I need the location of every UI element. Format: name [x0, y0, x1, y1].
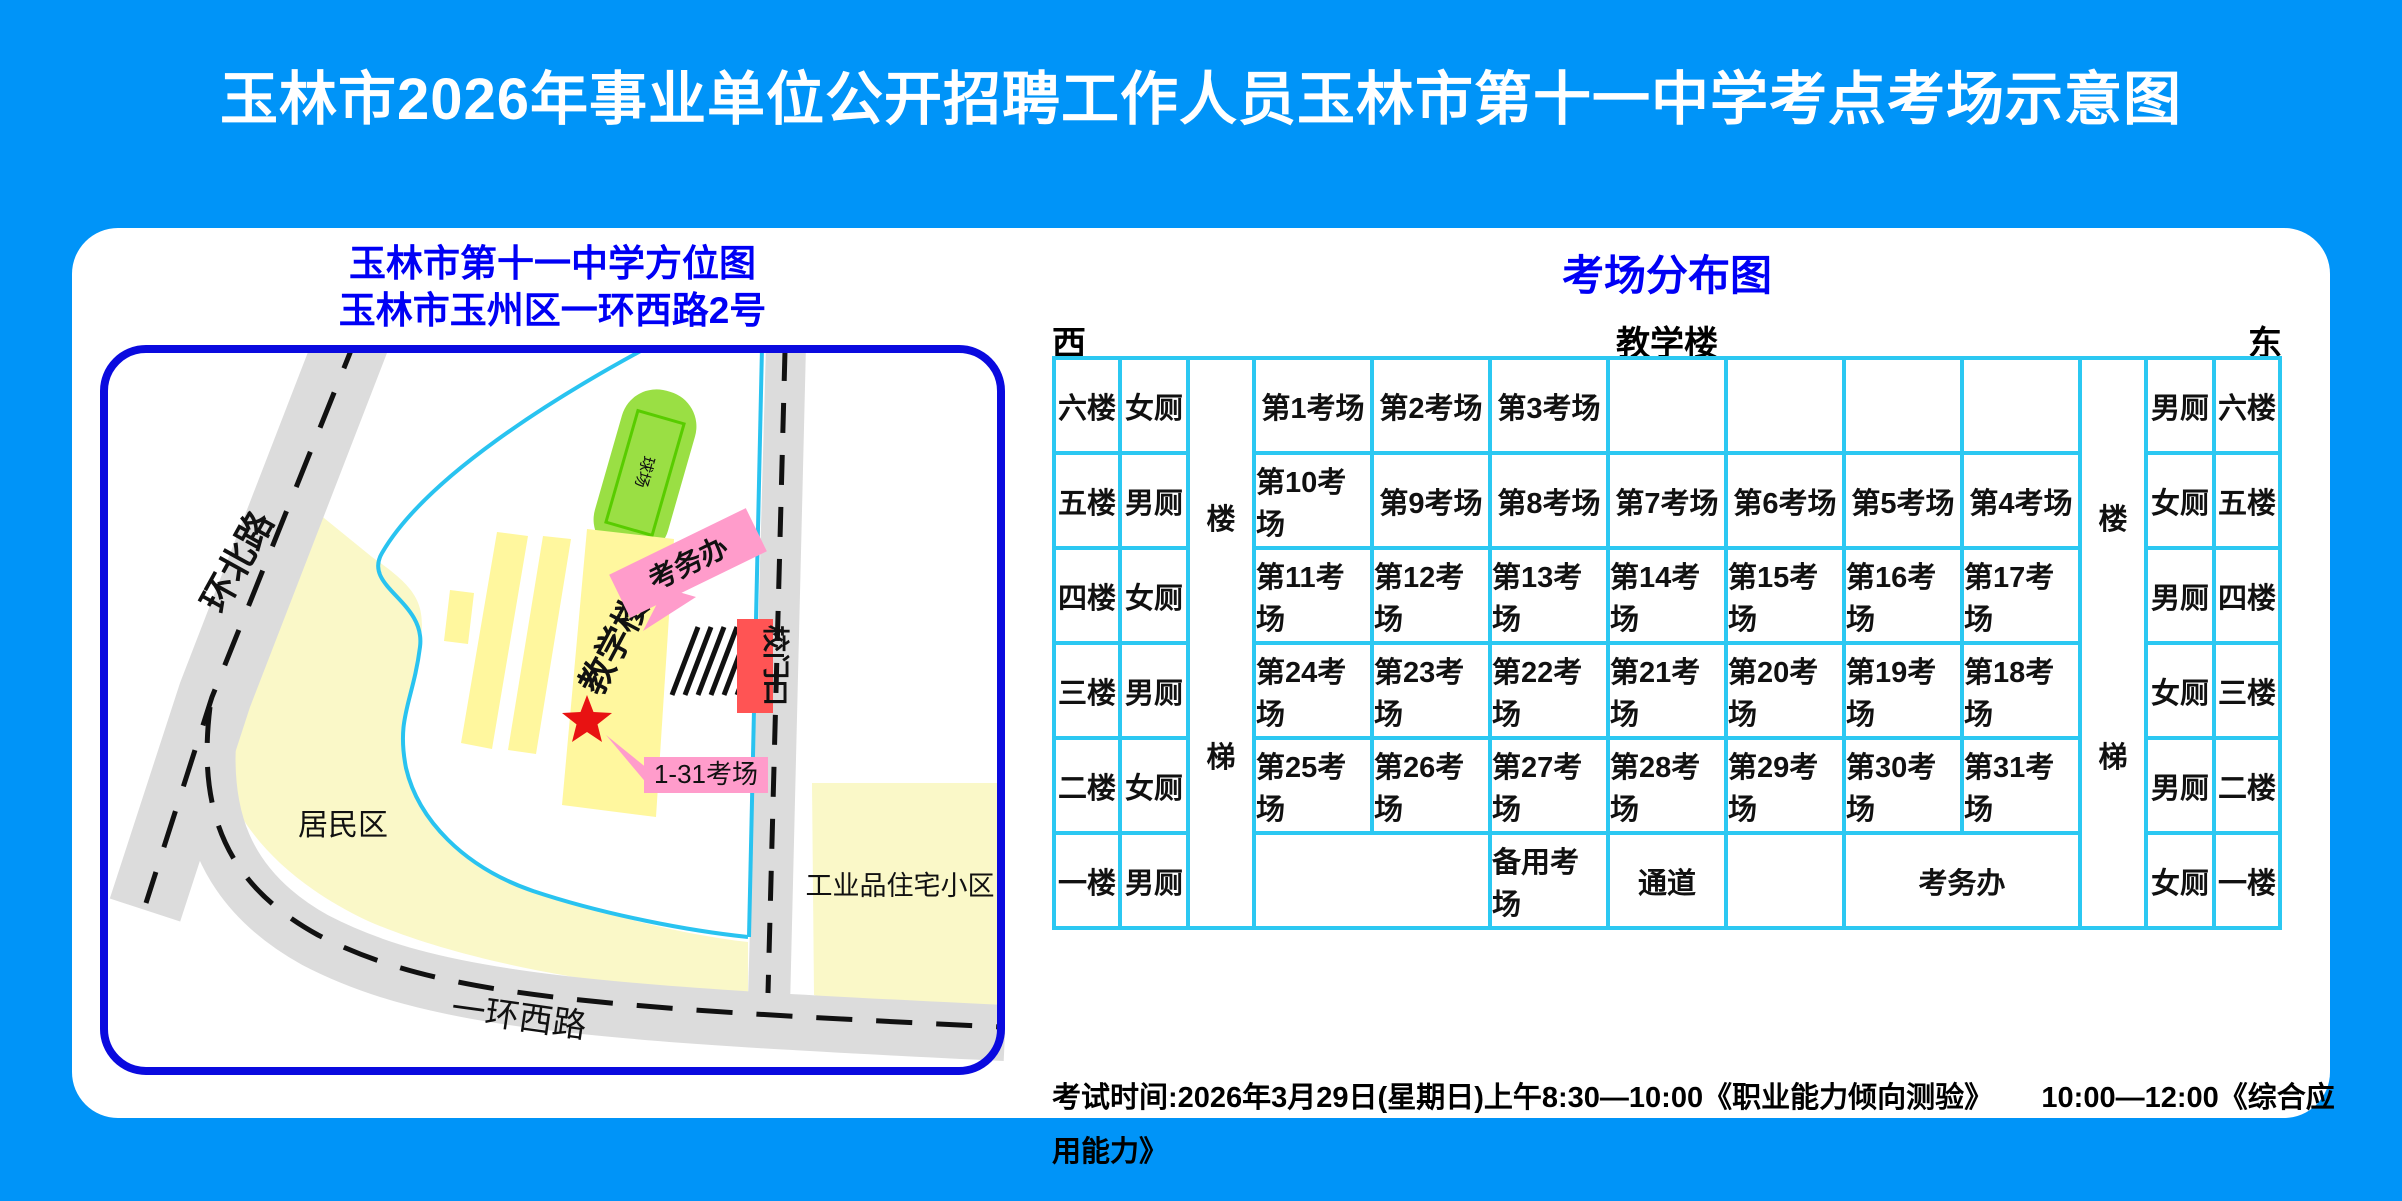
toilet-cell-left: 男厕 [1122, 645, 1186, 736]
exam-grid: 楼 梯 楼 梯 六楼女厕第1考场第2考场第3考场男厕六楼五楼男厕第10考场第9考… [1052, 356, 2282, 930]
room-cell: 第8考场 [1492, 455, 1606, 546]
room-cell: 第17考场 [1964, 550, 2078, 641]
direction-row: 西 教学楼 东 [1052, 316, 2282, 356]
floor-cell-right: 一楼 [2216, 835, 2278, 926]
room-cell: 第27考场 [1492, 740, 1606, 831]
room-cell: 第9考场 [1374, 455, 1488, 546]
empty-cell [1256, 835, 1488, 926]
toilet-cell-right: 男厕 [2148, 740, 2212, 831]
floor-cell-left: 五楼 [1056, 455, 1118, 546]
distribution-title: 考场分布图 [1052, 242, 2282, 303]
room-cell: 第31考场 [1964, 740, 2078, 831]
poster-title: 玉林市2026年事业单位公开招聘工作人员玉林市第十一中学考点考场示意图 [0, 52, 2402, 136]
rooms-range-label: 1-31考场 [654, 759, 758, 789]
toilet-cell-right: 女厕 [2148, 835, 2212, 926]
floor-cell-left: 一楼 [1056, 835, 1118, 926]
toilet-cell-right: 男厕 [2148, 360, 2212, 451]
room-cell: 第29考场 [1728, 740, 1842, 831]
map-title-line1: 玉林市第十一中学方位图 [100, 240, 1005, 287]
toilet-cell-left: 女厕 [1122, 740, 1186, 831]
room-cell: 第4考场 [1964, 455, 2078, 546]
room-cell: 考务办 [1846, 835, 2078, 926]
empty-cell [1964, 360, 2078, 451]
room-cell: 第2考场 [1374, 360, 1488, 451]
exam-time-note: 考试时间:2026年3月29日(星期日)上午8:30—10:00《职业能力倾向测… [1052, 1071, 2352, 1179]
building-annex [444, 590, 474, 644]
room-cell: 第25考场 [1256, 740, 1370, 831]
poster: 玉林市2026年事业单位公开招聘工作人员玉林市第十一中学考点考场示意图 玉林市第… [0, 0, 2402, 1201]
room-cell: 第26考场 [1374, 740, 1488, 831]
room-cell: 第15考场 [1728, 550, 1842, 641]
empty-cell [1846, 360, 1960, 451]
room-cell: 第18考场 [1964, 645, 2078, 736]
room-cell: 第30考场 [1846, 740, 1960, 831]
toilet-cell-right: 女厕 [2148, 645, 2212, 736]
room-cell: 第14考场 [1610, 550, 1724, 641]
stairs-left: 楼 梯 [1190, 360, 1252, 926]
room-cell: 第6考场 [1728, 455, 1842, 546]
room-cell: 第5考场 [1846, 455, 1960, 546]
floor-cell-right: 六楼 [2216, 360, 2278, 451]
floor-cell-right: 二楼 [2216, 740, 2278, 831]
exam-notes: 考试时间:2026年3月29日(星期日)上午8:30—10:00《职业能力倾向测… [1052, 963, 2352, 1201]
gate-label: 校门口 [760, 625, 791, 706]
room-cell: 备用考场 [1492, 835, 1606, 926]
toilet-cell-left: 女厕 [1122, 550, 1186, 641]
toilet-cell-right: 女厕 [2148, 455, 2212, 546]
room-cell: 第1考场 [1256, 360, 1370, 451]
room-cell: 第24考场 [1256, 645, 1370, 736]
room-cell: 第22考场 [1492, 645, 1606, 736]
residential-label: 居民区 [298, 809, 388, 842]
floor-cell-left: 二楼 [1056, 740, 1118, 831]
empty-cell [1610, 360, 1724, 451]
room-cell: 第13考场 [1492, 550, 1606, 641]
toilet-cell-left: 男厕 [1122, 835, 1186, 926]
room-cell: 第23考场 [1374, 645, 1488, 736]
toilet-cell-left: 女厕 [1122, 360, 1186, 451]
floor-cell-left: 四楼 [1056, 550, 1118, 641]
toilet-cell-right: 男厕 [2148, 550, 2212, 641]
industrial-label: 工业品住宅小区 [806, 871, 995, 901]
floor-cell-left: 六楼 [1056, 360, 1118, 451]
floor-cell-right: 三楼 [2216, 645, 2278, 736]
room-cell: 第28考场 [1610, 740, 1724, 831]
room-cell: 第19考场 [1846, 645, 1960, 736]
empty-cell [1728, 360, 1842, 451]
empty-cell [1728, 835, 1842, 926]
toilet-cell-left: 男厕 [1122, 455, 1186, 546]
stairs-right: 楼 梯 [2082, 360, 2144, 926]
map-title: 玉林市第十一中学方位图 玉林市玉州区一环西路2号 [100, 240, 1005, 334]
room-cell: 第3考场 [1492, 360, 1606, 451]
floor-cell-right: 五楼 [2216, 455, 2278, 546]
room-cell: 第21考场 [1610, 645, 1724, 736]
room-cell: 第10考场 [1256, 455, 1370, 546]
room-cell: 第7考场 [1610, 455, 1724, 546]
room-cell: 第20考场 [1728, 645, 1842, 736]
map-title-line2: 玉林市玉州区一环西路2号 [100, 287, 1005, 334]
room-cell: 第12考场 [1374, 550, 1488, 641]
floor-cell-left: 三楼 [1056, 645, 1118, 736]
location-map: 球场 教学楼 考务办 校门口 1-31考场 [100, 345, 1005, 1075]
room-cell: 第11考场 [1256, 550, 1370, 641]
room-cell: 第16考场 [1846, 550, 1960, 641]
floor-cell-right: 四楼 [2216, 550, 2278, 641]
room-cell: 通道 [1610, 835, 1724, 926]
